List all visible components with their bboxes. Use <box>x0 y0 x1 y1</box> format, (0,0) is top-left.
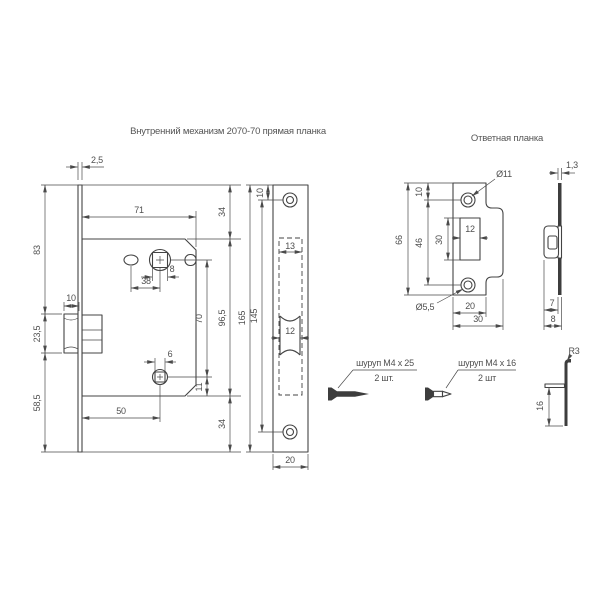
lip-profile <box>565 359 572 426</box>
dim-strike-plate-width: 20 <box>465 301 475 311</box>
dim-strike-thickness: 1,3 <box>566 160 578 170</box>
dim-strike-total-height: 66 <box>394 235 404 245</box>
dim-body-width: 71 <box>134 205 144 215</box>
screw-m4x16-label: шуруп М4 x 16 <box>458 358 516 368</box>
screw-m4x16-qty: 2 шт <box>478 373 496 383</box>
dim-plate-thickness: 2,5 <box>91 155 103 165</box>
dim-top-hole-offset: 10 <box>255 188 265 198</box>
screw-m4x25-qty: 2 шт. <box>374 373 393 383</box>
dim-latch-height: 23,5 <box>32 325 42 342</box>
latch-follower-block <box>82 315 102 353</box>
dim-backset: 50 <box>116 406 126 416</box>
dim-hole-spacing: 38 <box>141 276 151 286</box>
dim-latch-front-width: 12 <box>285 326 295 336</box>
dim-top-offset: 34 <box>217 207 227 217</box>
dim-hole-spacing-vertical: 145 <box>249 309 259 324</box>
faceplate-edge <box>78 185 82 452</box>
dim-strike-slot-height: 30 <box>434 235 444 245</box>
screw-m4x16-head <box>425 388 434 401</box>
plate-profile <box>545 384 565 388</box>
dim-strike-slot-width: 12 <box>465 224 475 234</box>
dim-strike-hole-diameter: Ø11 <box>496 169 512 179</box>
technical-drawing-page: Внутренний механизм 2070-70 прямая планк… <box>0 0 600 600</box>
faceplate-front-view: 10 165 145 13 12 20 <box>237 185 309 470</box>
dim-upper-height: 83 <box>32 245 42 255</box>
strike-screw: шуруп М4 x 16 2 шт <box>425 358 516 401</box>
oval-hole <box>124 255 138 265</box>
strike-plate-side-view: 1,3 7 8 <box>544 160 578 330</box>
dim-spindle-square: 8 <box>170 264 175 274</box>
mechanism-title: Внутренний механизм 2070-70 прямая планк… <box>130 126 327 137</box>
dim-strike-top-hole-offset: 10 <box>414 187 424 197</box>
dim-plate-width: 20 <box>285 455 295 465</box>
side-plate-bottom <box>558 258 562 295</box>
faceplate-outline <box>273 185 308 452</box>
dim-latch-width: 10 <box>66 293 76 303</box>
screw-m4x25 <box>328 388 369 401</box>
strike-plate-front-view: Ø11 10 66 46 30 12 Ø5,5 20 30 <box>394 169 512 330</box>
dim-total-height: 165 <box>237 311 247 326</box>
strike-title: Ответная планка <box>471 133 544 144</box>
side-lip-inner <box>548 236 557 249</box>
screw-m4x16-tip <box>443 391 452 396</box>
dim-lip-radius: R3 <box>568 346 579 356</box>
screw-m4x16-shaft <box>434 391 443 396</box>
dim-bottom-square: 6 <box>168 349 173 359</box>
mechanism-side-view: 2,5 71 83 10 23,5 58,5 8 38 6 50 70 11 3… <box>32 155 241 452</box>
dim-strike-screw-hole-diameter: Ø5,5 <box>416 302 435 312</box>
mechanism-screw: шуруп М4 x 25 2 шт. <box>328 358 417 401</box>
dim-lower-height: 58,5 <box>32 394 42 411</box>
dim-strike-total-width: 30 <box>473 314 483 324</box>
dim-strike-hole-spacing: 46 <box>414 238 424 248</box>
dim-hidden-body-width: 13 <box>285 241 295 251</box>
lock-technical-drawing: Внутренний механизм 2070-70 прямая планк… <box>0 0 600 600</box>
dim-bottom-offset: 34 <box>217 419 227 429</box>
dim-square-to-edge: 11 <box>194 382 204 391</box>
dim-body-height: 96,5 <box>217 309 227 326</box>
dim-spindle-to-square: 70 <box>194 314 204 324</box>
side-plate-top <box>558 183 562 227</box>
dim-lip-offset: 7 <box>550 298 555 308</box>
screw-m4x25-label: шуруп М4 x 25 <box>356 358 414 368</box>
dim-lip-height: 16 <box>535 401 545 411</box>
dim-lip-depth: 8 <box>551 314 556 324</box>
strike-lip-detail: R3 16 <box>535 346 580 426</box>
